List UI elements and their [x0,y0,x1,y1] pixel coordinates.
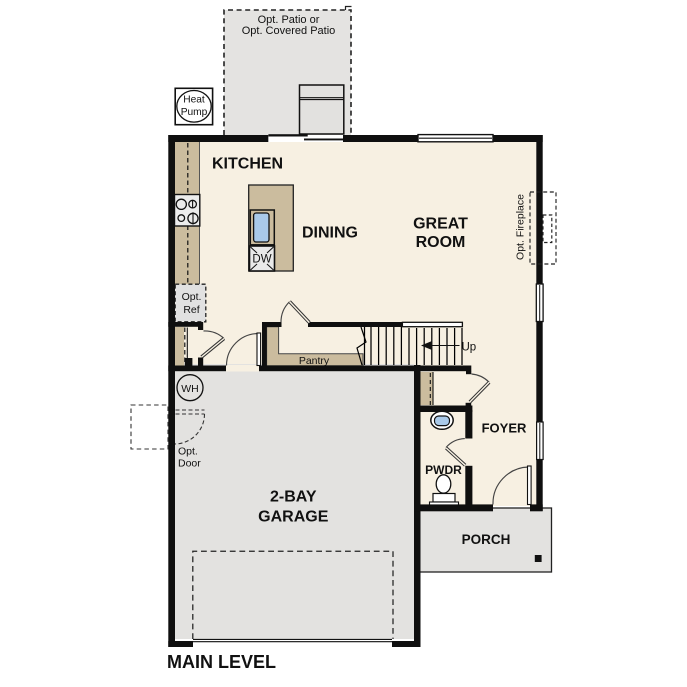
svg-text:ROOM: ROOM [416,234,466,251]
svg-text:Heat: Heat [183,95,205,106]
svg-text:Pantry: Pantry [299,355,330,367]
svg-text:PWDR: PWDR [425,463,462,477]
svg-text:Door: Door [178,458,201,470]
svg-text:GARAGE: GARAGE [258,509,329,526]
svg-text:KITCHEN: KITCHEN [212,156,283,173]
svg-text:DINING: DINING [302,225,358,242]
svg-text:2-BAY: 2-BAY [270,488,317,505]
svg-text:WH: WH [181,383,199,395]
svg-text:Opt.: Opt. [178,446,198,458]
svg-text:Up: Up [462,342,477,354]
svg-text:PORCH: PORCH [462,532,511,547]
svg-text:FOYER: FOYER [482,421,527,436]
svg-text:MAIN LEVEL: MAIN LEVEL [167,652,276,672]
svg-text:Ref: Ref [183,304,199,316]
svg-text:Pump: Pump [181,107,208,118]
svg-text:Opt. Fireplace: Opt. Fireplace [515,194,527,260]
svg-text:Opt. Covered Patio: Opt. Covered Patio [242,25,336,37]
svg-text:GREAT: GREAT [413,215,468,232]
svg-text:DW: DW [252,254,271,266]
svg-text:Opt.: Opt. [182,291,202,303]
